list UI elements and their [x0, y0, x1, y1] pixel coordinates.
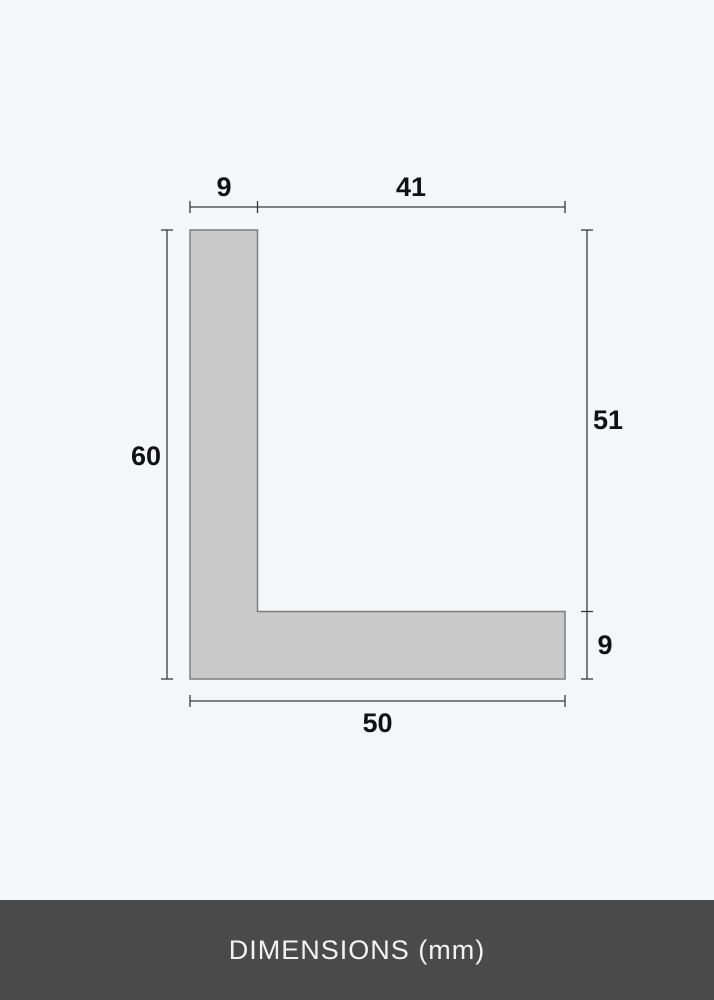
dim-label-right-base-height: 9: [597, 630, 612, 660]
l-profile-shape: [190, 230, 565, 679]
dim-label-right-upper-height: 51: [593, 405, 623, 435]
dim-line-top: [190, 201, 565, 213]
dim-line-left: [161, 230, 173, 679]
dim-label-left-total-height: 60: [131, 441, 161, 471]
dim-label-bottom-total-width: 50: [362, 708, 392, 738]
dim-line-bottom: [190, 695, 565, 707]
dim-label-top-flange-width: 9: [216, 172, 231, 202]
dim-line-right: [581, 230, 593, 679]
footer-caption: DIMENSIONS (mm): [229, 935, 485, 966]
profile-drawing: 9 41 60 51 9 50: [0, 0, 714, 900]
dim-label-top-opening-width: 41: [396, 172, 426, 202]
dimension-diagram: 9 41 60 51 9 50: [0, 0, 714, 900]
footer-bar: DIMENSIONS (mm): [0, 900, 714, 1000]
